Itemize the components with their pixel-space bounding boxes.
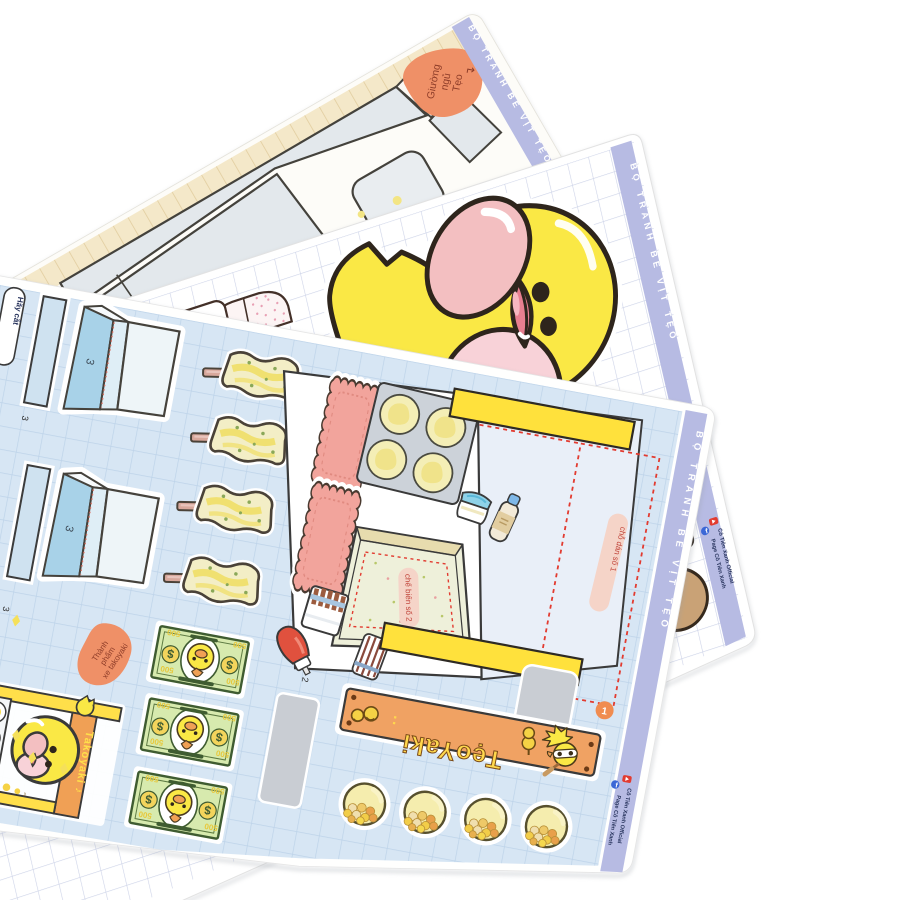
- svg-text:chế biến số 2: chế biến số 2: [403, 574, 413, 622]
